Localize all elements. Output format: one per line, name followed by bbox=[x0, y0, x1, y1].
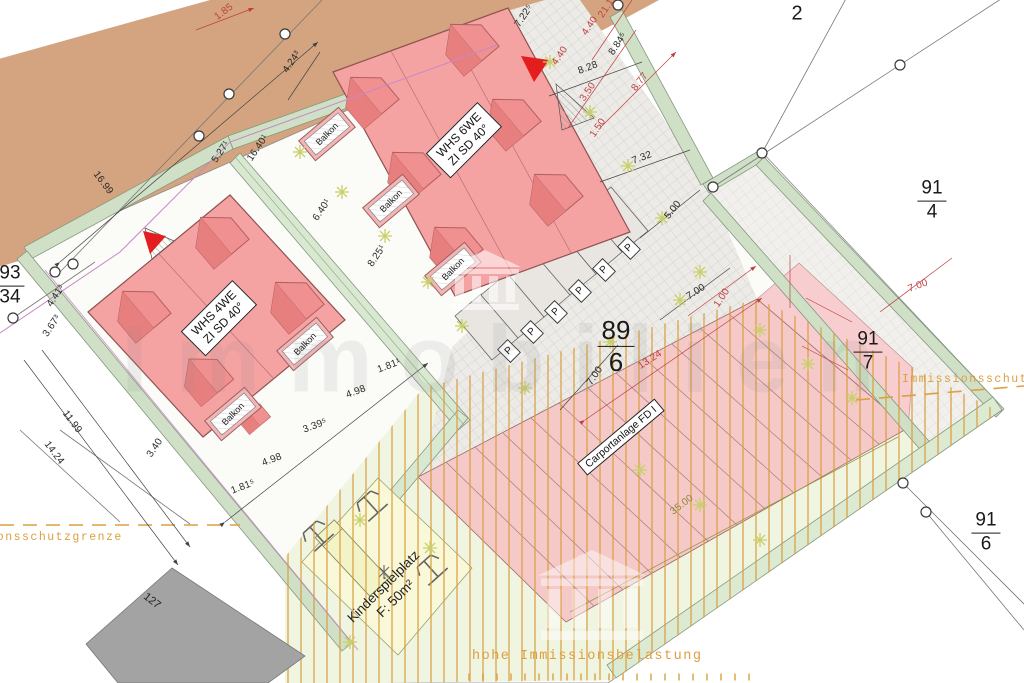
immission-boundary-label-left: Immissionsschutzgrenze bbox=[0, 531, 123, 544]
immission-load-label: hohe Immissionsbelastung bbox=[472, 649, 702, 664]
parcel-label-2: 2 bbox=[791, 3, 802, 26]
building-127 bbox=[86, 568, 305, 683]
site-plan: Immobilien 1.85 4.24³ 5.27¹ 16.40¹ 16.99… bbox=[0, 0, 1024, 683]
immission-boundary-label-right: Immissionsschutzgrenze bbox=[902, 373, 1024, 386]
parcel-label-91-7: 91 7 bbox=[853, 330, 882, 375]
parcel-label-91-4: 91 4 bbox=[917, 179, 946, 224]
parcel-label-93-34: 93 34 bbox=[0, 264, 25, 309]
parcel-label-91-6: 91 6 bbox=[971, 511, 1000, 556]
parcel-label-89-6: 89 6 bbox=[598, 316, 635, 376]
